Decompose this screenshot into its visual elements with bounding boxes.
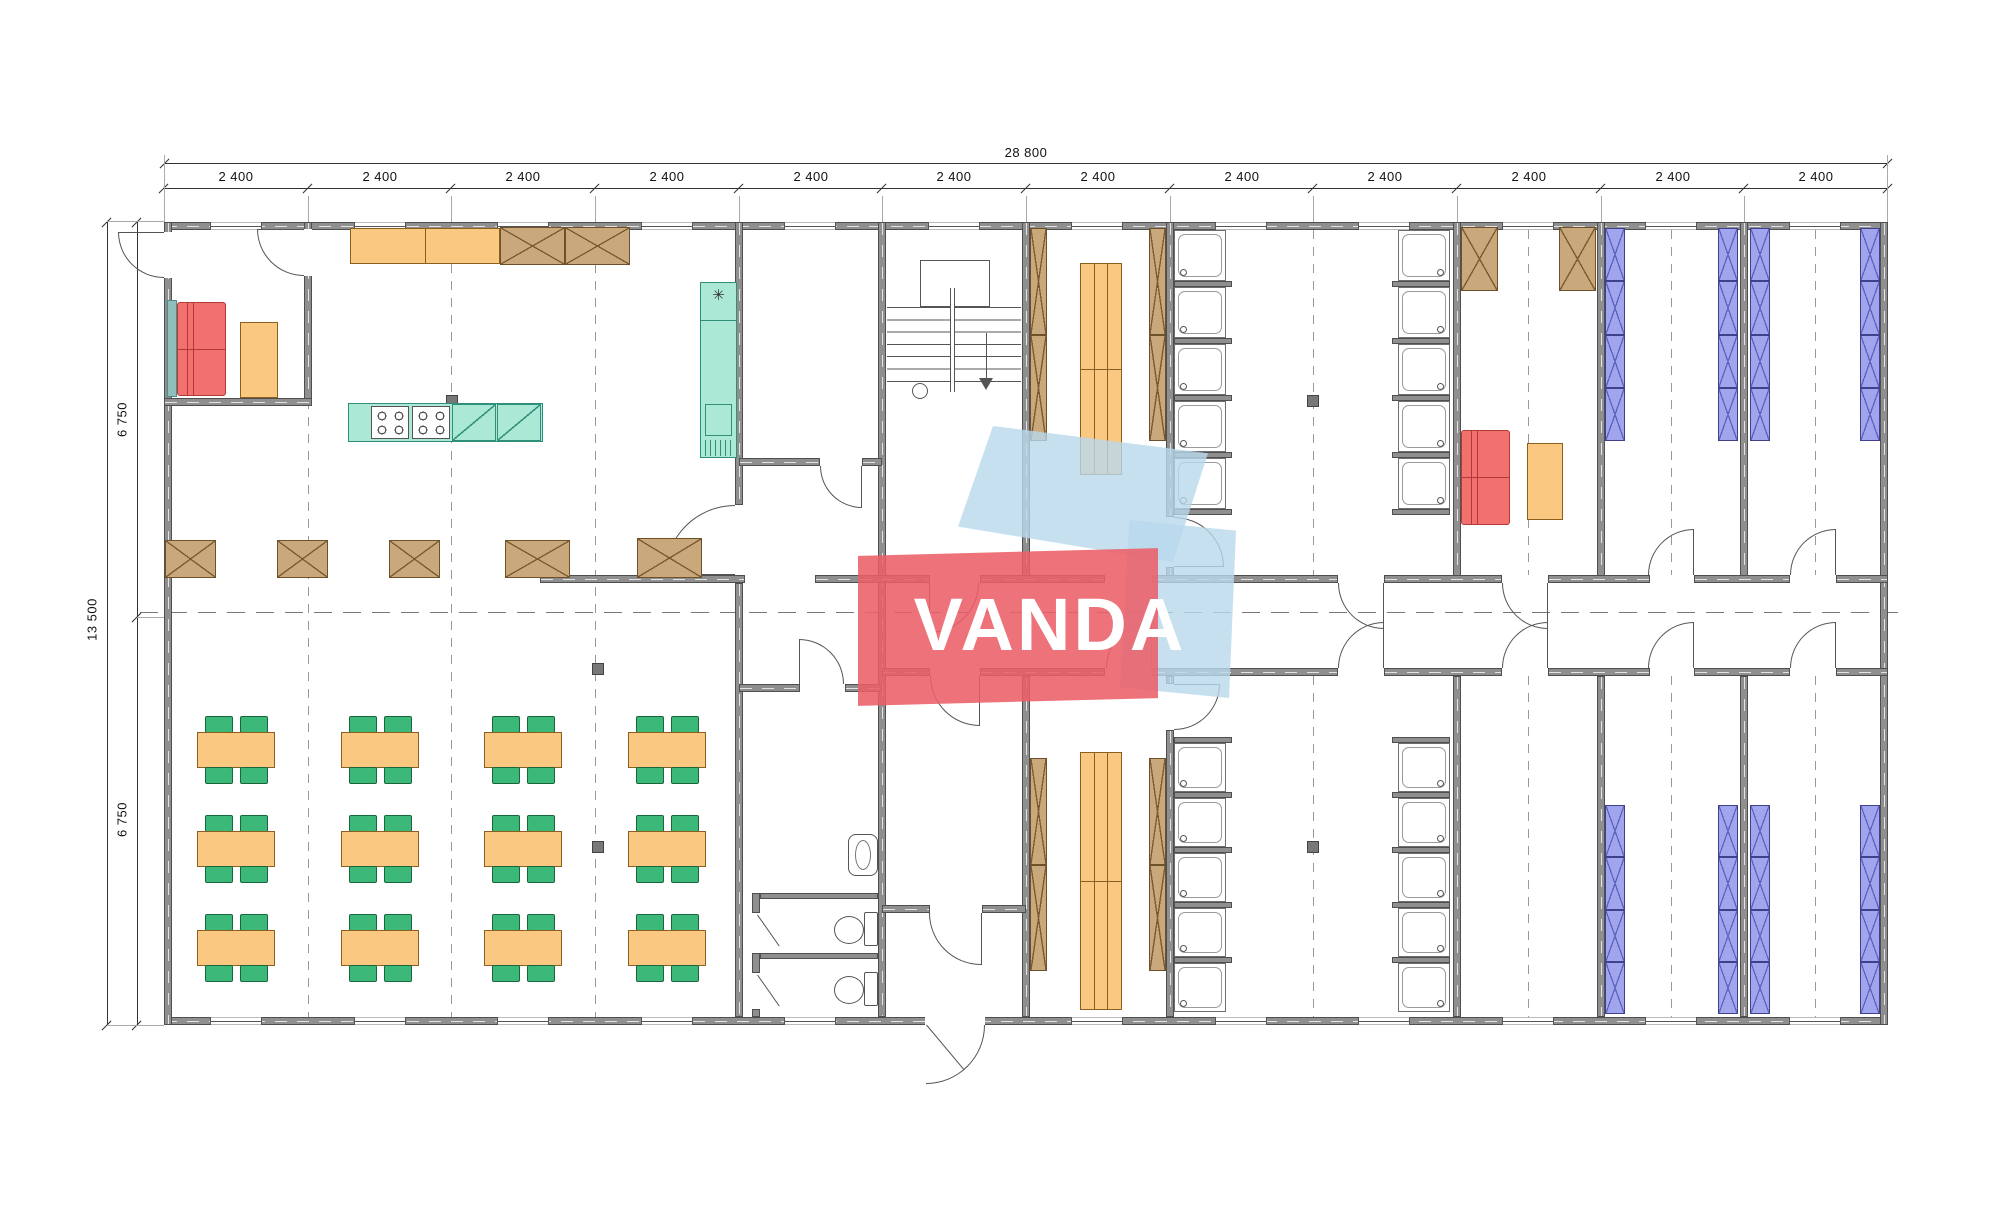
side-table [240,322,278,398]
dimension-label-half-height: 6 750 [115,790,130,850]
door-swing-arc [1790,622,1836,668]
dimension-label-half-height: 6 750 [115,390,130,450]
wall [1453,676,1461,1017]
window [1502,1017,1554,1025]
wall [739,684,800,692]
changing-bench [1080,752,1122,1010]
dimension-label-bay: 2 400 [1170,169,1314,184]
extension-line [882,196,883,222]
wall [1694,575,1790,583]
window [1358,222,1410,230]
bunk-bed [1605,335,1625,388]
stair-newel [912,383,928,399]
main-entrance-opening [925,1017,985,1025]
dining-table-group [628,815,706,883]
bunk-bed-column [1718,805,1738,1014]
window [1645,1017,1697,1025]
dining-table-group [484,914,562,982]
extension-line [308,196,309,222]
locker [1030,865,1047,972]
bunk-bed [1718,281,1738,334]
chair [205,767,233,784]
locker-column [1149,228,1166,441]
chair [384,914,412,931]
locker-column [1030,758,1047,971]
toilet-tank [864,972,878,1006]
window [928,222,980,230]
shower-stall [1174,401,1226,452]
shower-stall [1398,963,1450,1012]
wall [1880,222,1888,1025]
kitchen-sink [705,404,732,436]
dining-table [628,732,706,768]
window [1645,222,1697,230]
bunk-bed [1605,805,1625,857]
window [1789,222,1841,230]
bunk-bed [1860,805,1880,857]
column [592,841,604,853]
chair [671,866,699,883]
column [1307,395,1319,407]
bunk-bed [1750,805,1770,857]
dining-table-group [628,716,706,784]
chair [384,965,412,982]
bunk-bed [1718,857,1738,909]
chair [492,914,520,931]
bunk-bed [1860,281,1880,334]
chair [205,914,233,931]
shower-stall [1398,230,1450,281]
chair [636,965,664,982]
window [210,222,262,230]
door-swing-arc [926,1025,985,1084]
grid-line [1815,676,1816,1017]
door-swing-arc [1502,622,1548,668]
side-table [1527,443,1563,520]
column [1307,841,1319,853]
crossed-cabinet [1461,227,1498,291]
chair [349,914,377,931]
sink-drainer [705,440,732,456]
grid-line [1528,230,1529,575]
extension-line [164,155,165,222]
chair [527,965,555,982]
shower-stall [1174,963,1226,1012]
chair [671,815,699,832]
crossed-cabinet [565,227,630,265]
bunk-bed [1718,335,1738,388]
dimension-label-total-height: 13 500 [85,590,100,650]
dimension-label-bay: 2 400 [1457,169,1601,184]
chair [636,815,664,832]
bunk-bed [1750,962,1770,1014]
window [784,222,836,230]
door-leaf [257,229,304,230]
crossed-cabinet [389,540,440,578]
dimension-line [107,222,108,1025]
extension-line [1026,196,1027,222]
crossed-cabinet [637,538,702,578]
window [641,1017,693,1025]
bunk-bed [1605,281,1625,334]
window [1502,222,1554,230]
chair [384,815,412,832]
floor-plan-canvas: 28 800 2 400 2 400 2 400 2 400 2 400 2 4… [0,0,2000,1216]
window [784,1017,836,1025]
bunk-bed [1750,228,1770,281]
chair [384,767,412,784]
door-swing-arc [118,232,164,278]
chair [527,815,555,832]
chair [492,965,520,982]
chair [205,716,233,733]
dining-table [484,831,562,867]
dining-table [484,732,562,768]
chair [671,914,699,931]
window [354,1017,406,1025]
window [210,1017,262,1025]
locker [1149,865,1166,972]
bunk-bed [1718,910,1738,962]
shower-stall [1174,798,1226,847]
wall [1384,575,1502,583]
chair [205,965,233,982]
chair [671,716,699,733]
extension-line [451,196,452,222]
extension-line [137,617,164,618]
locker-column [1149,758,1166,971]
dining-table [197,732,275,768]
locker [1030,335,1047,442]
bunk-bed [1750,910,1770,962]
extension-line [107,221,164,222]
stove [371,406,409,439]
chair [205,866,233,883]
window [1071,222,1123,230]
wall [1597,222,1605,578]
shower-stall [1398,401,1450,452]
wall [1694,668,1790,676]
dimension-label-bay: 2 400 [882,169,1026,184]
dining-table-group [341,815,419,883]
extension-line [1887,155,1888,222]
extension-line [107,1025,164,1026]
dimension-label-bay: 2 400 [308,169,452,184]
wall [1384,668,1502,676]
chair [349,815,377,832]
locker [1030,228,1047,335]
dimension-label-bay: 2 400 [1313,169,1457,184]
locker [1149,228,1166,335]
wc-partition [752,893,760,913]
extension-line [1313,196,1314,222]
window [497,1017,549,1025]
bunk-bed [1750,281,1770,334]
stove [412,406,450,439]
locker [1149,335,1166,442]
chair [240,767,268,784]
chair [671,767,699,784]
shower-stall [1174,344,1226,395]
wall [1740,222,1748,578]
wall [739,458,820,466]
wall [1453,222,1461,578]
chair [349,716,377,733]
dimension-label-bay: 2 400 [1601,169,1745,184]
chair [349,866,377,883]
bunk-bed [1605,857,1625,909]
locker [1149,758,1166,865]
toilet [834,976,864,1004]
chair [636,914,664,931]
freezer-icon: ✳ [700,287,737,305]
dining-table [484,930,562,966]
dining-table-group [341,716,419,784]
door-swing-arc [929,913,981,965]
wall [1548,668,1650,676]
bunk-bed [1605,388,1625,441]
bunk-bed [1718,962,1738,1014]
bunk-bed [1860,857,1880,909]
wall [164,398,312,406]
toilet [834,916,864,944]
wc-partition [752,1009,760,1017]
bunk-bed [1605,962,1625,1014]
chair [349,767,377,784]
grid-line [451,230,452,1017]
wall [1022,676,1030,1017]
chair [240,716,268,733]
window [641,222,693,230]
locker-column [1030,228,1047,441]
bunk-bed-column [1750,805,1770,1014]
chair [240,815,268,832]
wall [1836,668,1888,676]
wall [1548,575,1650,583]
sofa [1461,430,1510,525]
dining-table [628,930,706,966]
chair [492,767,520,784]
bunk-bed [1860,910,1880,962]
dimension-label-bay: 2 400 [1744,169,1888,184]
shower-stall [1398,853,1450,902]
bunk-bed [1750,857,1770,909]
wall [164,1017,1888,1025]
dining-table [197,930,275,966]
extension-line [739,196,740,222]
toilet-tank [864,912,878,946]
sofa-backrest [167,300,177,397]
watermark-text: VANDA [870,580,1230,670]
chair [492,815,520,832]
bunk-bed [1718,388,1738,441]
dining-table [197,831,275,867]
chair [636,866,664,883]
grid-line [1815,230,1816,575]
door-swing-arc [1338,622,1384,668]
chair [492,866,520,883]
dimension-line [137,222,138,1025]
bunk-bed [1605,910,1625,962]
stair-rail [950,288,955,392]
door-opening [164,232,172,278]
wall [1597,676,1605,1017]
door-leaf [118,232,164,233]
wall [1740,676,1748,1017]
chair [636,716,664,733]
chair [492,716,520,733]
dimension-label-bay: 2 400 [451,169,595,184]
extension-line [1601,196,1602,222]
wall [1836,575,1888,583]
door-swing-arc [1648,529,1694,575]
shower-stall [1174,743,1226,792]
bunk-bed-column [1860,228,1880,441]
window [1789,1017,1841,1025]
washbasin [848,834,878,876]
chair [240,914,268,931]
shower-stall [1398,458,1450,509]
door-swing-arc [257,229,304,276]
bunk-bed-column [1750,228,1770,441]
kitchen-cabinet [350,228,500,264]
bunk-bed [1860,962,1880,1014]
door-swing-arc [799,639,844,684]
chair [527,914,555,931]
dining-table [341,831,419,867]
extension-line [1744,196,1745,222]
shower-stall [1398,344,1450,395]
dimension-label-bay: 2 400 [164,169,308,184]
door-leaf [981,913,982,965]
bunk-bed-column [1605,228,1625,441]
dimension-label-bay: 2 400 [595,169,739,184]
door-leaf [757,915,780,947]
shower-stall [1398,908,1450,957]
bunk-bed-column [1718,228,1738,441]
wall [882,905,930,913]
dining-table-group [628,914,706,982]
dimension-label-total-width: 28 800 [826,145,1226,160]
grid-line [1528,676,1529,1017]
bunk-bed [1750,388,1770,441]
bunk-bed [1718,805,1738,857]
door-swing-arc [1648,622,1694,668]
dimension-label-bay: 2 400 [1026,169,1170,184]
grid-line [1671,676,1672,1017]
bunk-bed [1860,228,1880,281]
column [592,663,604,675]
dining-table [341,930,419,966]
door-leaf [757,975,780,1007]
locker [1030,758,1047,865]
dimension-label-bay: 2 400 [739,169,883,184]
shower-stall [1174,908,1226,957]
crossed-cabinet [277,540,328,578]
wc-partition [760,893,878,899]
stair-down-arrow-icon [979,378,993,390]
wall [862,458,882,466]
chair [384,866,412,883]
chair [636,767,664,784]
shower-stall [1398,287,1450,338]
window [1071,1017,1123,1025]
bunk-bed-column [1605,805,1625,1014]
bunk-bed-column [1860,805,1880,1014]
dining-table-group [341,914,419,982]
shower-stall [1174,853,1226,902]
grid-line [595,230,596,1017]
stair-landing [920,260,990,307]
chair [240,965,268,982]
sink-counter [452,404,496,441]
window [1215,1017,1267,1025]
bunk-bed [1605,228,1625,281]
chair [240,866,268,883]
door-swing-arc [1790,529,1836,575]
sofa [177,302,226,396]
dining-table-group [484,716,562,784]
chair [671,965,699,982]
chair [527,716,555,733]
wall [982,905,1026,913]
shower-stall [1174,230,1226,281]
crossed-cabinet [500,227,565,265]
dining-table-group [197,716,275,784]
shower-stall [1398,798,1450,847]
dining-table [628,831,706,867]
dining-table-group [197,914,275,982]
bunk-bed [1860,388,1880,441]
dimension-line [164,163,1888,164]
dining-table-group [197,815,275,883]
shower-stall [1398,743,1450,792]
dining-table-group [484,815,562,883]
wc-partition [752,953,760,973]
extension-line [1170,196,1171,222]
chair [349,965,377,982]
wall [735,583,743,1017]
wc-partition [760,953,878,959]
window [1215,222,1267,230]
bunk-bed [1860,335,1880,388]
crossed-cabinet [505,540,570,578]
shower-stall [1174,287,1226,338]
door-opening [304,229,312,276]
window [1358,1017,1410,1025]
bunk-bed [1718,228,1738,281]
shower-partition [1392,509,1450,515]
door-swing-arc [820,466,862,508]
sink-counter [497,404,541,441]
extension-line [1457,196,1458,222]
stair-direction-line [986,333,987,381]
chair [205,815,233,832]
crossed-cabinet [1559,227,1596,291]
chair [527,767,555,784]
crossed-cabinet [165,540,216,578]
chair [527,866,555,883]
grid-line [1671,230,1672,575]
dining-table [341,732,419,768]
extension-line [595,196,596,222]
wall [1166,730,1174,1017]
chair [384,716,412,733]
bunk-bed [1750,335,1770,388]
